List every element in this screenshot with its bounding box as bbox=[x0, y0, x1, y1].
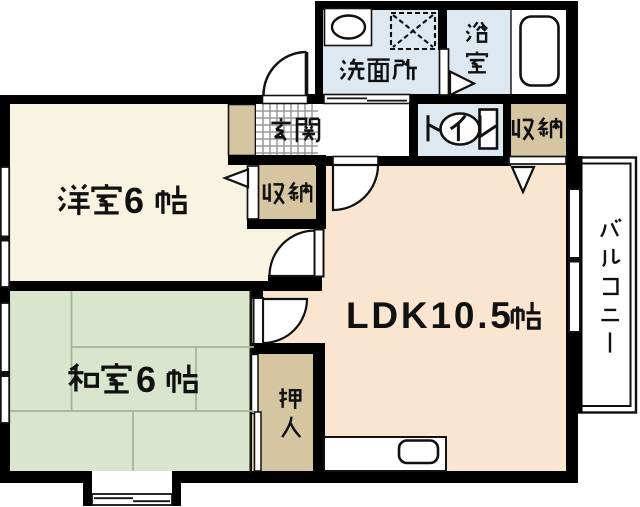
svg-text:6: 6 bbox=[124, 180, 144, 221]
svg-text:LDK10.5: LDK10.5 bbox=[346, 295, 514, 336]
svg-text:6: 6 bbox=[136, 359, 156, 400]
